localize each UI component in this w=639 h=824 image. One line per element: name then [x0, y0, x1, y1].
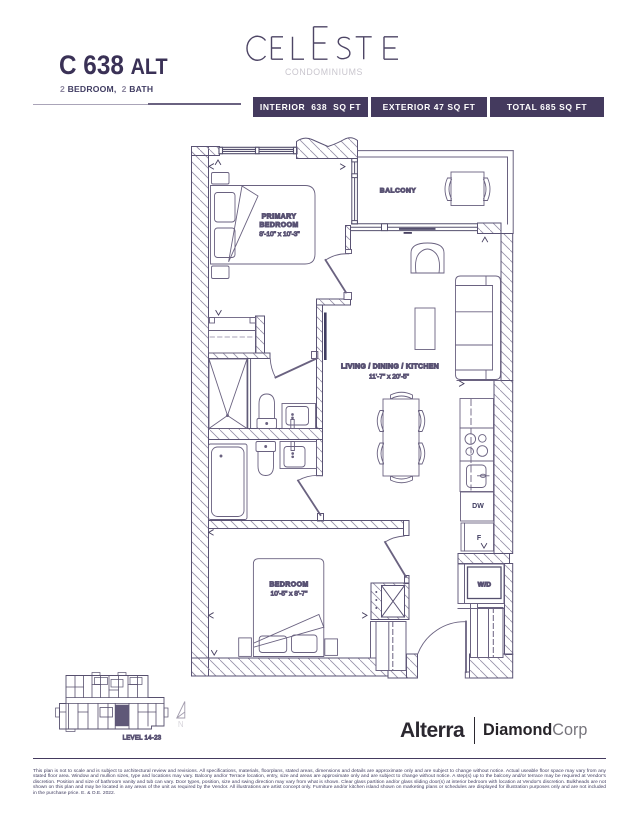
svg-text:BEDROOM: BEDROOM — [269, 582, 308, 589]
svg-text:10'-5" x 8'-7": 10'-5" x 8'-7" — [271, 591, 309, 598]
svg-text:11'-7" x 20'-5": 11'-7" x 20'-5" — [369, 374, 410, 381]
svg-text:DW: DW — [472, 503, 484, 510]
svg-text:LEVEL 14-23: LEVEL 14-23 — [123, 736, 162, 742]
svg-text:BEDROOM: BEDROOM — [259, 222, 298, 229]
svg-text:8'-10" x 10'-3": 8'-10" x 10'-3" — [259, 231, 300, 238]
svg-text:BALCONY: BALCONY — [380, 188, 416, 195]
svg-text:PRIMARY: PRIMARY — [262, 214, 297, 221]
svg-text:F: F — [477, 535, 482, 542]
svg-text:N: N — [178, 720, 184, 729]
svg-text:LIVING / DINING / KITCHEN: LIVING / DINING / KITCHEN — [341, 364, 439, 371]
svg-text:W/D: W/D — [478, 581, 491, 588]
